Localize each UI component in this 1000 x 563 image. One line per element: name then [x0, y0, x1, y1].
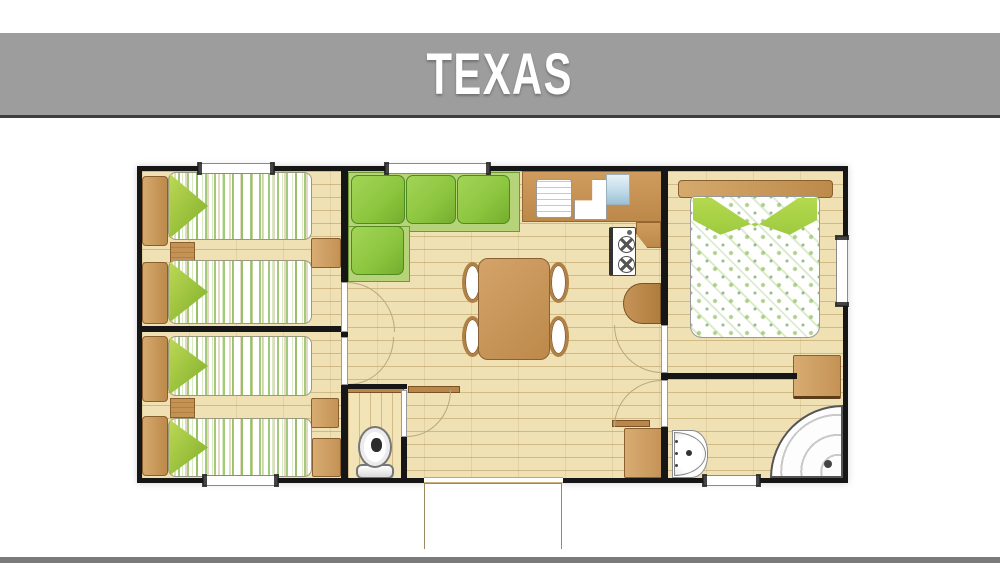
sink-drainer	[536, 179, 572, 218]
shower-drain-icon	[824, 460, 832, 468]
bed3-headboard	[142, 336, 168, 402]
sink-dots	[675, 452, 678, 455]
wall-bath-left	[661, 427, 668, 483]
window-living	[385, 163, 490, 174]
wall-wc-left	[341, 385, 348, 483]
kitchen-window	[606, 174, 630, 205]
wall-master-upper	[661, 166, 668, 325]
master-wardrobe	[793, 355, 841, 399]
wall-wc-top	[341, 384, 407, 389]
entrance-porch	[424, 483, 562, 549]
window-bedroom2	[203, 475, 278, 486]
dining-table	[478, 258, 550, 360]
sofa-cushion-2	[406, 175, 456, 224]
wall-left	[137, 166, 142, 483]
dining-chair	[548, 262, 569, 303]
cooktop-knob	[627, 230, 632, 235]
plan-title: TEXAS	[427, 41, 573, 108]
burner-icon	[618, 256, 635, 273]
floorplan	[137, 166, 848, 483]
bedroom1-shelf	[311, 238, 341, 268]
title-banner: TEXAS	[0, 33, 1000, 118]
toilet-bowl-hole	[371, 438, 382, 452]
bottom-edge-strip	[0, 557, 1000, 563]
side-table	[623, 283, 661, 324]
wall-bedrooms-living-upper	[341, 166, 348, 282]
door-bedroom1	[341, 282, 348, 332]
wall-right	[843, 166, 848, 483]
window-bathroom	[703, 475, 760, 486]
bed1-headboard	[142, 176, 168, 246]
bedroom2-cabinet	[312, 438, 341, 477]
dining-chair	[548, 316, 569, 357]
wall-wc-right	[401, 437, 407, 483]
hall-cabinet	[624, 428, 664, 478]
door-wc	[401, 390, 407, 437]
cooktop	[609, 227, 636, 276]
bedroom2-shelf	[311, 398, 339, 428]
door-bedroom2	[341, 337, 348, 385]
floorplan-page: TEXAS	[0, 0, 1000, 563]
window-bedroom1	[198, 163, 274, 174]
sink-dots	[675, 464, 678, 467]
door-master	[661, 325, 668, 373]
bed4-headboard	[142, 416, 168, 476]
wall-bottom-left	[137, 478, 424, 483]
bed2-headboard	[142, 262, 168, 324]
wall-bath-top	[661, 373, 797, 379]
sofa-cushion-4	[351, 226, 404, 275]
sink-faucet	[686, 450, 692, 456]
sofa-cushion-1	[351, 175, 405, 224]
window-master	[836, 236, 848, 306]
bedroom2-nightstand	[170, 398, 195, 418]
sofa-cushion-3	[457, 175, 510, 224]
door-bathroom	[661, 380, 668, 427]
wall-between-bedrooms	[137, 326, 348, 332]
toilet	[358, 426, 392, 468]
burner-icon	[618, 236, 635, 253]
sink-dots	[675, 440, 678, 443]
